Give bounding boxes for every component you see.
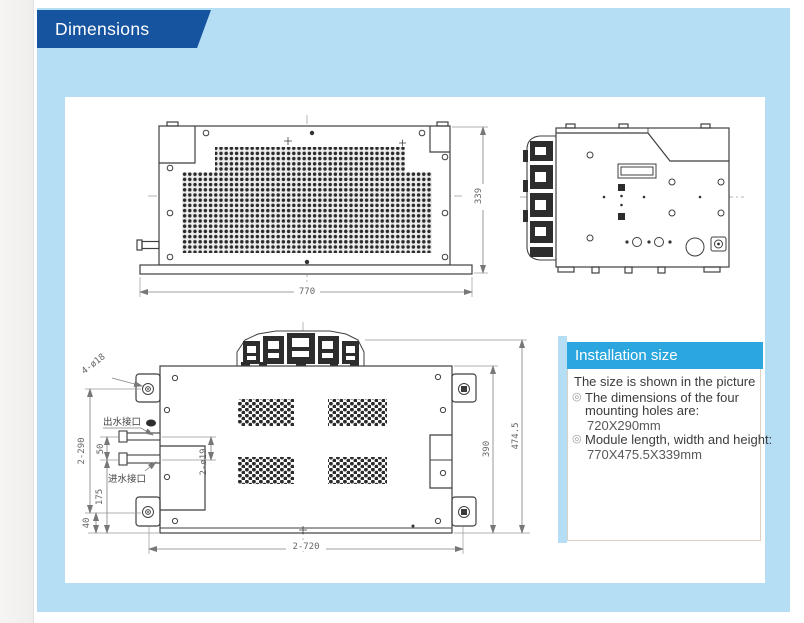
page-title: Dimensions <box>37 19 149 39</box>
top-view-terminals <box>237 331 364 366</box>
label-water-outlet: 出水接口 <box>103 416 141 428</box>
dim-height-339: 339 <box>474 188 484 204</box>
side-view-terminals <box>523 136 556 260</box>
bullseye-bullet-icon: ◎ <box>572 433 585 446</box>
installation-size-box: The size is shown in the picture ◎ The d… <box>567 369 761 541</box>
section-title-ribbon: Dimensions <box>37 10 211 48</box>
dim-hole-bottom-offset: 40 <box>82 518 92 529</box>
top-view: 4-ø18 出水接口 进水接口 2-290 50 175 40 2-ø19 2-… <box>77 322 530 554</box>
installation-size-title: Installation size <box>567 347 678 364</box>
installation-size-header: Installation size <box>567 342 763 369</box>
bullet-value: 720X290mm <box>585 419 760 433</box>
page-edge-strip <box>0 0 34 623</box>
label-water-inlet: 进水接口 <box>108 473 146 485</box>
bullet-label: The dimensions of the four mounting hole… <box>585 390 739 419</box>
dim-body-depth: 390 <box>482 441 492 457</box>
dim-mounting-holes: 4-ø18 <box>80 352 108 377</box>
list-item: ◎ Module length, width and height: 770X4… <box>572 433 760 461</box>
list-item: ◎ The dimensions of the four mounting ho… <box>572 391 760 433</box>
dim-pipe-diameter: 2-ø19 <box>199 448 209 475</box>
dim-hole-spacing-vertical: 2-290 <box>77 437 87 464</box>
dim-pipe-spacing: 50 <box>96 444 106 455</box>
dim-inlet-offset: 175 <box>95 489 105 505</box>
front-view: 770 339 <box>137 115 488 297</box>
bullet-label: Module length, width and height: <box>585 432 772 447</box>
side-view <box>520 124 744 273</box>
dim-width-770: 770 <box>299 287 315 297</box>
bullet-value: 770X475.5X339mm <box>585 448 772 462</box>
dim-total-depth: 474.5 <box>511 422 521 449</box>
panel-gap-strip <box>558 336 567 543</box>
dim-hole-spacing-horizontal: 2-720 <box>292 542 319 552</box>
top-view-body <box>136 366 476 533</box>
front-view-grille <box>182 147 432 253</box>
bullseye-bullet-icon: ◎ <box>572 391 585 404</box>
installation-intro: The size is shown in the picture <box>574 375 760 389</box>
